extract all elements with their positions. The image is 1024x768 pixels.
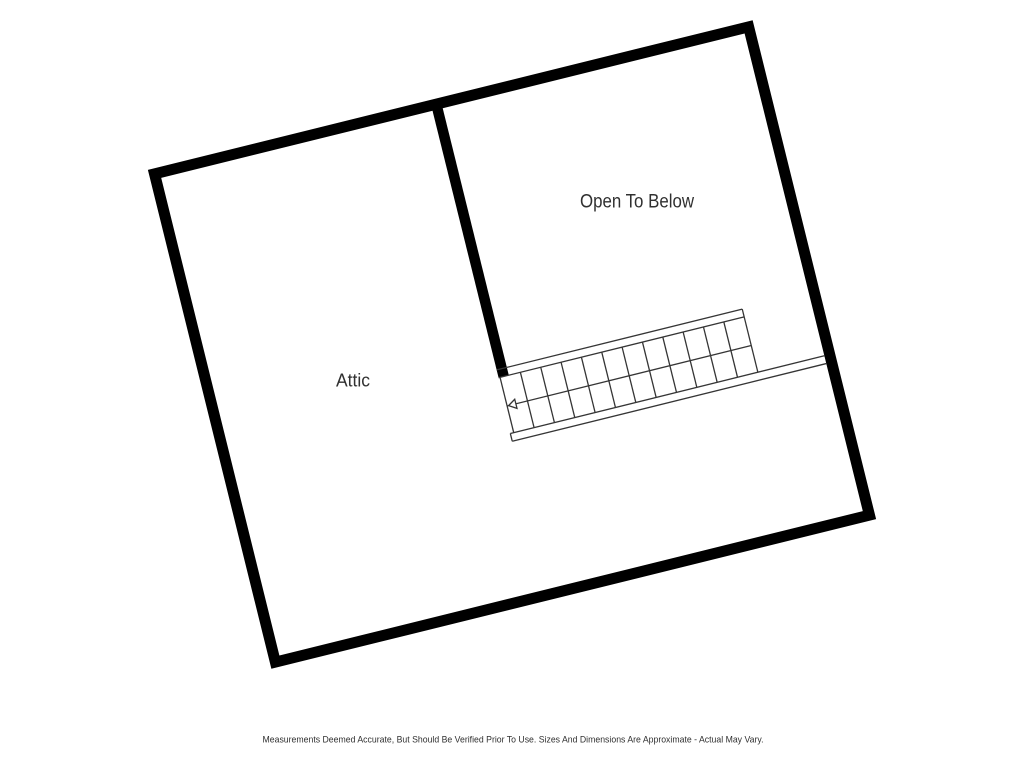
svg-text:Attic: Attic	[336, 371, 370, 391]
svg-text:Measurements Deemed Accurate,: Measurements Deemed Accurate, But Should…	[263, 735, 764, 746]
svg-text:Open To Below: Open To Below	[580, 192, 694, 213]
